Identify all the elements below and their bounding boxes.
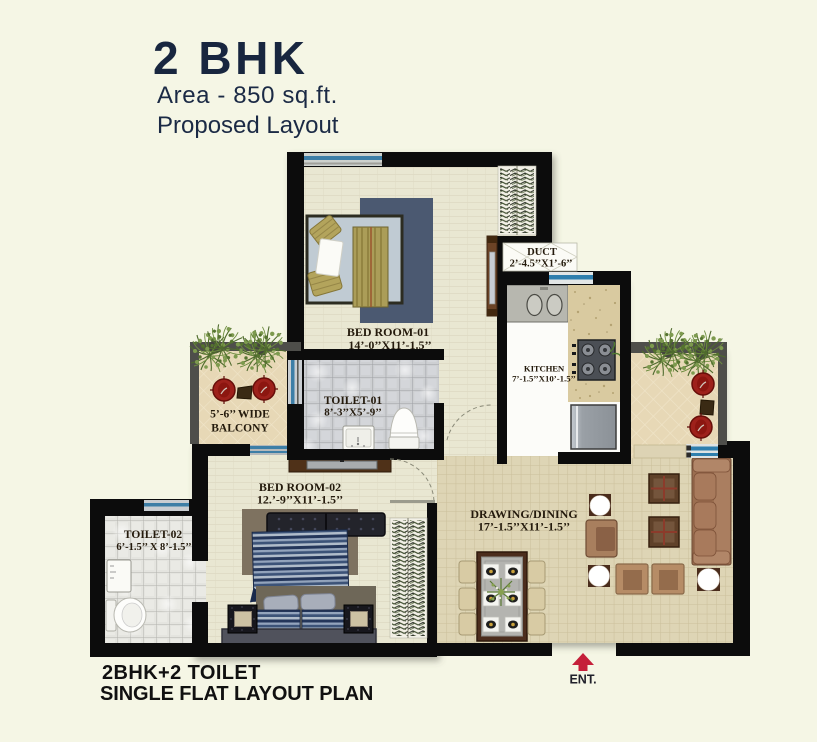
- svg-text:BED ROOM-01: BED ROOM-01: [347, 325, 429, 339]
- svg-text:14’-0’’X11’-1.5’’: 14’-0’’X11’-1.5’’: [348, 338, 431, 352]
- svg-text:Proposed Layout: Proposed Layout: [157, 112, 339, 139]
- svg-text:TOILET-01: TOILET-01: [324, 395, 382, 407]
- svg-text:SINGLE FLAT LAYOUT PLAN: SINGLE FLAT LAYOUT PLAN: [100, 683, 373, 705]
- svg-text:Area - 850 sq.ft.: Area - 850 sq.ft.: [157, 82, 338, 109]
- svg-text:7’-1.5’’X10’-1.5’’: 7’-1.5’’X10’-1.5’’: [512, 374, 576, 384]
- svg-text:2’-4.5’’X1’-6’’: 2’-4.5’’X1’-6’’: [510, 259, 573, 270]
- svg-text:DUCT: DUCT: [527, 247, 557, 258]
- svg-text:5’-6’’ WIDE: 5’-6’’ WIDE: [210, 409, 270, 421]
- svg-text:17’-1.5’’X11’-1.5’’: 17’-1.5’’X11’-1.5’’: [478, 520, 570, 534]
- svg-text:TOILET-02: TOILET-02: [124, 529, 182, 541]
- svg-text:BALCONY: BALCONY: [211, 423, 269, 435]
- svg-text:KITCHEN: KITCHEN: [524, 364, 565, 374]
- svg-text:6’-1.5’’ X 8’-1.5’’: 6’-1.5’’ X 8’-1.5’’: [116, 542, 191, 553]
- svg-text:8’-3’’X5’-9’’: 8’-3’’X5’-9’’: [324, 407, 382, 419]
- svg-text:12.’-9’’X11’-1.5’’: 12.’-9’’X11’-1.5’’: [257, 493, 343, 507]
- svg-text:2BHK+2 TOILET: 2BHK+2 TOILET: [102, 662, 261, 684]
- svg-text:2 BHK: 2 BHK: [153, 32, 309, 84]
- svg-text:ENT.: ENT.: [569, 673, 596, 687]
